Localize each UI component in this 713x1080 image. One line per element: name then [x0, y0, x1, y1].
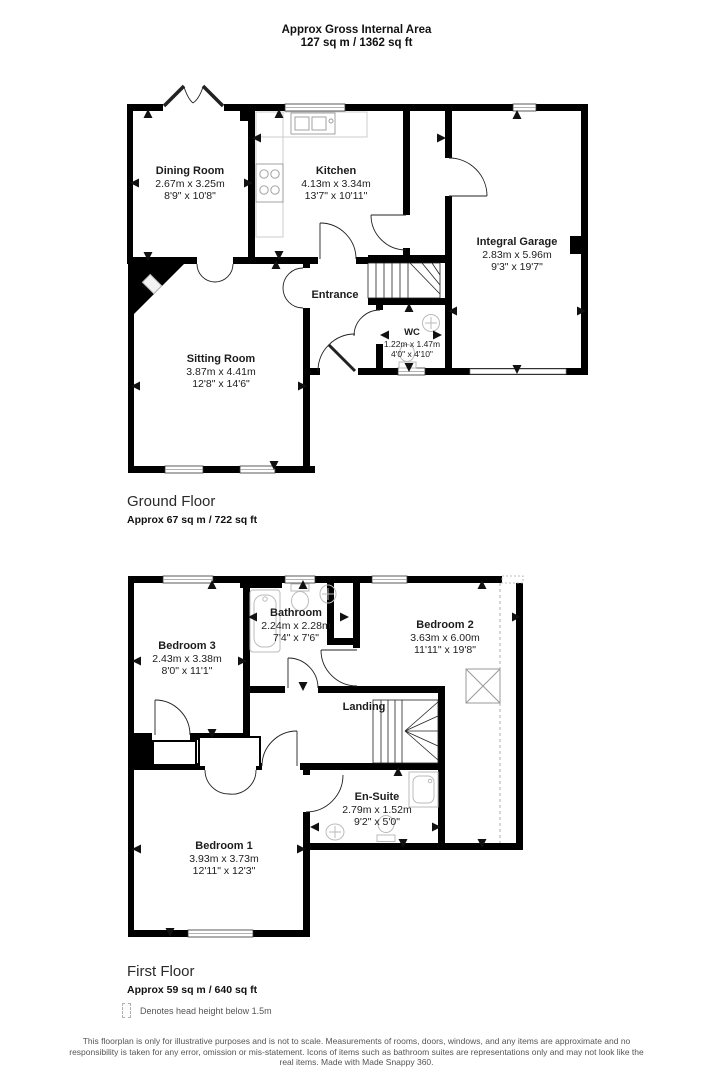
kitchen-window-icon: [285, 104, 345, 111]
room-label-bedroom-2: Bedroom 2 3.63m x 6.00m 11'11" x 19'8": [410, 619, 479, 656]
bedroom1-window-icon: [188, 930, 253, 937]
footer-disclaimer: This floorplan is only for illustrative …: [67, 1036, 647, 1068]
room-label-entrance: Entrance: [311, 289, 358, 302]
room-label-kitchen: Kitchen 4.13m x 3.34m 13'7" x 10'11": [301, 165, 370, 202]
sitting-window-icon: [165, 466, 203, 473]
closet-icons: [153, 737, 260, 766]
head-height-legend-icon: [122, 1003, 131, 1018]
room-label-bedroom-1: Bedroom 1 3.93m x 3.73m 12'11" x 12'3": [189, 840, 258, 877]
room-label-bedroom-3: Bedroom 3 2.43m x 3.38m 8'0" x 11'1": [152, 640, 221, 677]
kitchen-sink-icon: [291, 113, 335, 134]
room-label-wc: WC 1.22m x 1.47m 4'0" x 4'10": [384, 328, 440, 359]
room-label-bathroom: Bathroom 2.24m x 2.28m 7'4" x 7'6": [261, 607, 330, 644]
ground-floor-plan: [127, 86, 588, 473]
sitting-window-icon: [240, 466, 275, 473]
hob-icon: [256, 164, 283, 202]
garage-window-icon: [513, 104, 536, 111]
head-height-legend-label: Denotes head height below 1.5m: [140, 1006, 272, 1016]
room-label-dining-room: Dining Room 2.67m x 3.25m 8'9" x 10'8": [155, 165, 224, 202]
head-height-legend: Denotes head height below 1.5m: [122, 1003, 272, 1018]
stairs-icon: [368, 263, 440, 298]
room-label-integral-garage: Integral Garage 2.83m x 5.96m 9'3" x 19'…: [477, 236, 558, 273]
first-floor-title: First Floor Approx 59 sq m / 640 sq ft: [127, 964, 257, 996]
room-label-landing: Landing: [343, 701, 386, 714]
bedroom2-window-icon: [372, 576, 407, 583]
bedroom3-window-icon: [163, 576, 213, 583]
header-subtitle: 127 sq m / 1362 sq ft: [0, 37, 713, 50]
room-label-en-suite: En-Suite 2.79m x 1.52m 9'2" x 5'0": [342, 791, 411, 828]
header-title: Approx Gross Internal Area: [0, 24, 713, 37]
bathroom-window-icon: [285, 576, 315, 583]
ground-floor-title: Ground Floor Approx 67 sq m / 722 sq ft: [127, 494, 257, 526]
shower-icon: [409, 772, 438, 807]
roof-window-icon: [466, 669, 500, 703]
wc-window-icon: [398, 368, 425, 375]
gross-internal-area-header: Approx Gross Internal Area 127 sq m / 13…: [0, 24, 713, 50]
room-label-sitting-room: Sitting Room 3.87m x 4.41m 12'8" x 14'6": [186, 353, 255, 390]
window-icons: [165, 104, 566, 473]
floorplan-canvas: [0, 0, 713, 1080]
